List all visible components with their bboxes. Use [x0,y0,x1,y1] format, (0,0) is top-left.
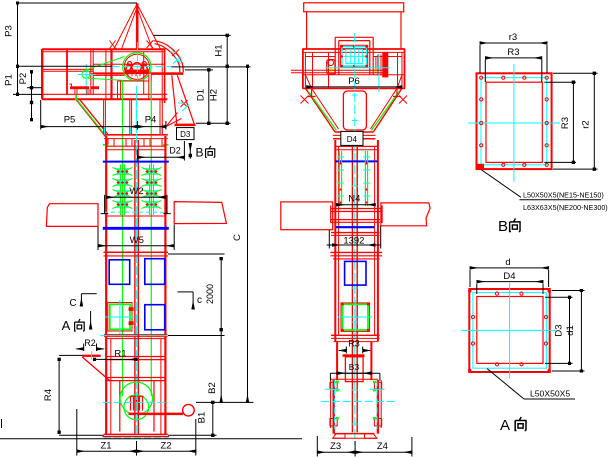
svg-text:D1: D1 [196,89,207,101]
svg-text:P2: P2 [18,73,29,85]
svg-text:D3: D3 [554,324,565,336]
svg-text:R3: R3 [560,117,571,129]
svg-text:B1: B1 [197,412,208,424]
svg-text:Z4: Z4 [377,441,388,452]
svg-text:L63X63X5(NE200-NE300): L63X63X5(NE200-NE300) [523,203,608,212]
svg-text:H1: H1 [214,44,225,56]
svg-text:d1: d1 [565,325,576,336]
svg-text:Z1: Z1 [100,441,111,452]
svg-text:R1: R1 [114,349,126,360]
svg-text:A: A [500,417,510,434]
svg-text:R3: R3 [507,47,519,58]
svg-text:B: B [498,218,508,235]
svg-text:c: c [197,295,202,306]
svg-text:L50X50X5: L50X50X5 [530,389,570,399]
svg-text:H2: H2 [209,89,220,101]
svg-text:D4: D4 [347,135,358,144]
svg-text:D2: D2 [169,146,181,156]
svg-text:R4: R4 [43,389,54,401]
svg-text:N4: N4 [348,194,360,205]
svg-text:r2: r2 [581,120,592,128]
svg-text:D3: D3 [180,130,191,139]
svg-text:Z2: Z2 [160,441,171,452]
svg-text:1392: 1392 [343,236,364,247]
svg-text:2000: 2000 [205,284,215,304]
svg-text:A: A [62,318,71,333]
svg-text:W5: W5 [130,235,144,246]
svg-text:d: d [505,257,510,268]
svg-text:B2: B2 [207,382,218,394]
svg-text:C: C [69,298,76,309]
svg-text:D4: D4 [503,271,515,282]
svg-text:B: B [195,146,203,160]
svg-text:R2: R2 [84,338,96,348]
svg-text:Z3: Z3 [330,441,341,452]
svg-text:P6: P6 [348,76,360,87]
svg-text:r3: r3 [509,32,517,43]
svg-text:R3: R3 [348,339,360,349]
svg-text:C: C [232,234,243,241]
svg-text:P1: P1 [4,74,15,86]
svg-text:W2: W2 [129,186,143,197]
svg-text:P4: P4 [145,115,157,126]
svg-text:P5: P5 [64,115,76,126]
svg-text:L50X50X5(NE15-NE150): L50X50X5(NE15-NE150) [523,191,604,200]
svg-text:P3: P3 [4,25,15,37]
svg-text:B3: B3 [349,362,360,372]
